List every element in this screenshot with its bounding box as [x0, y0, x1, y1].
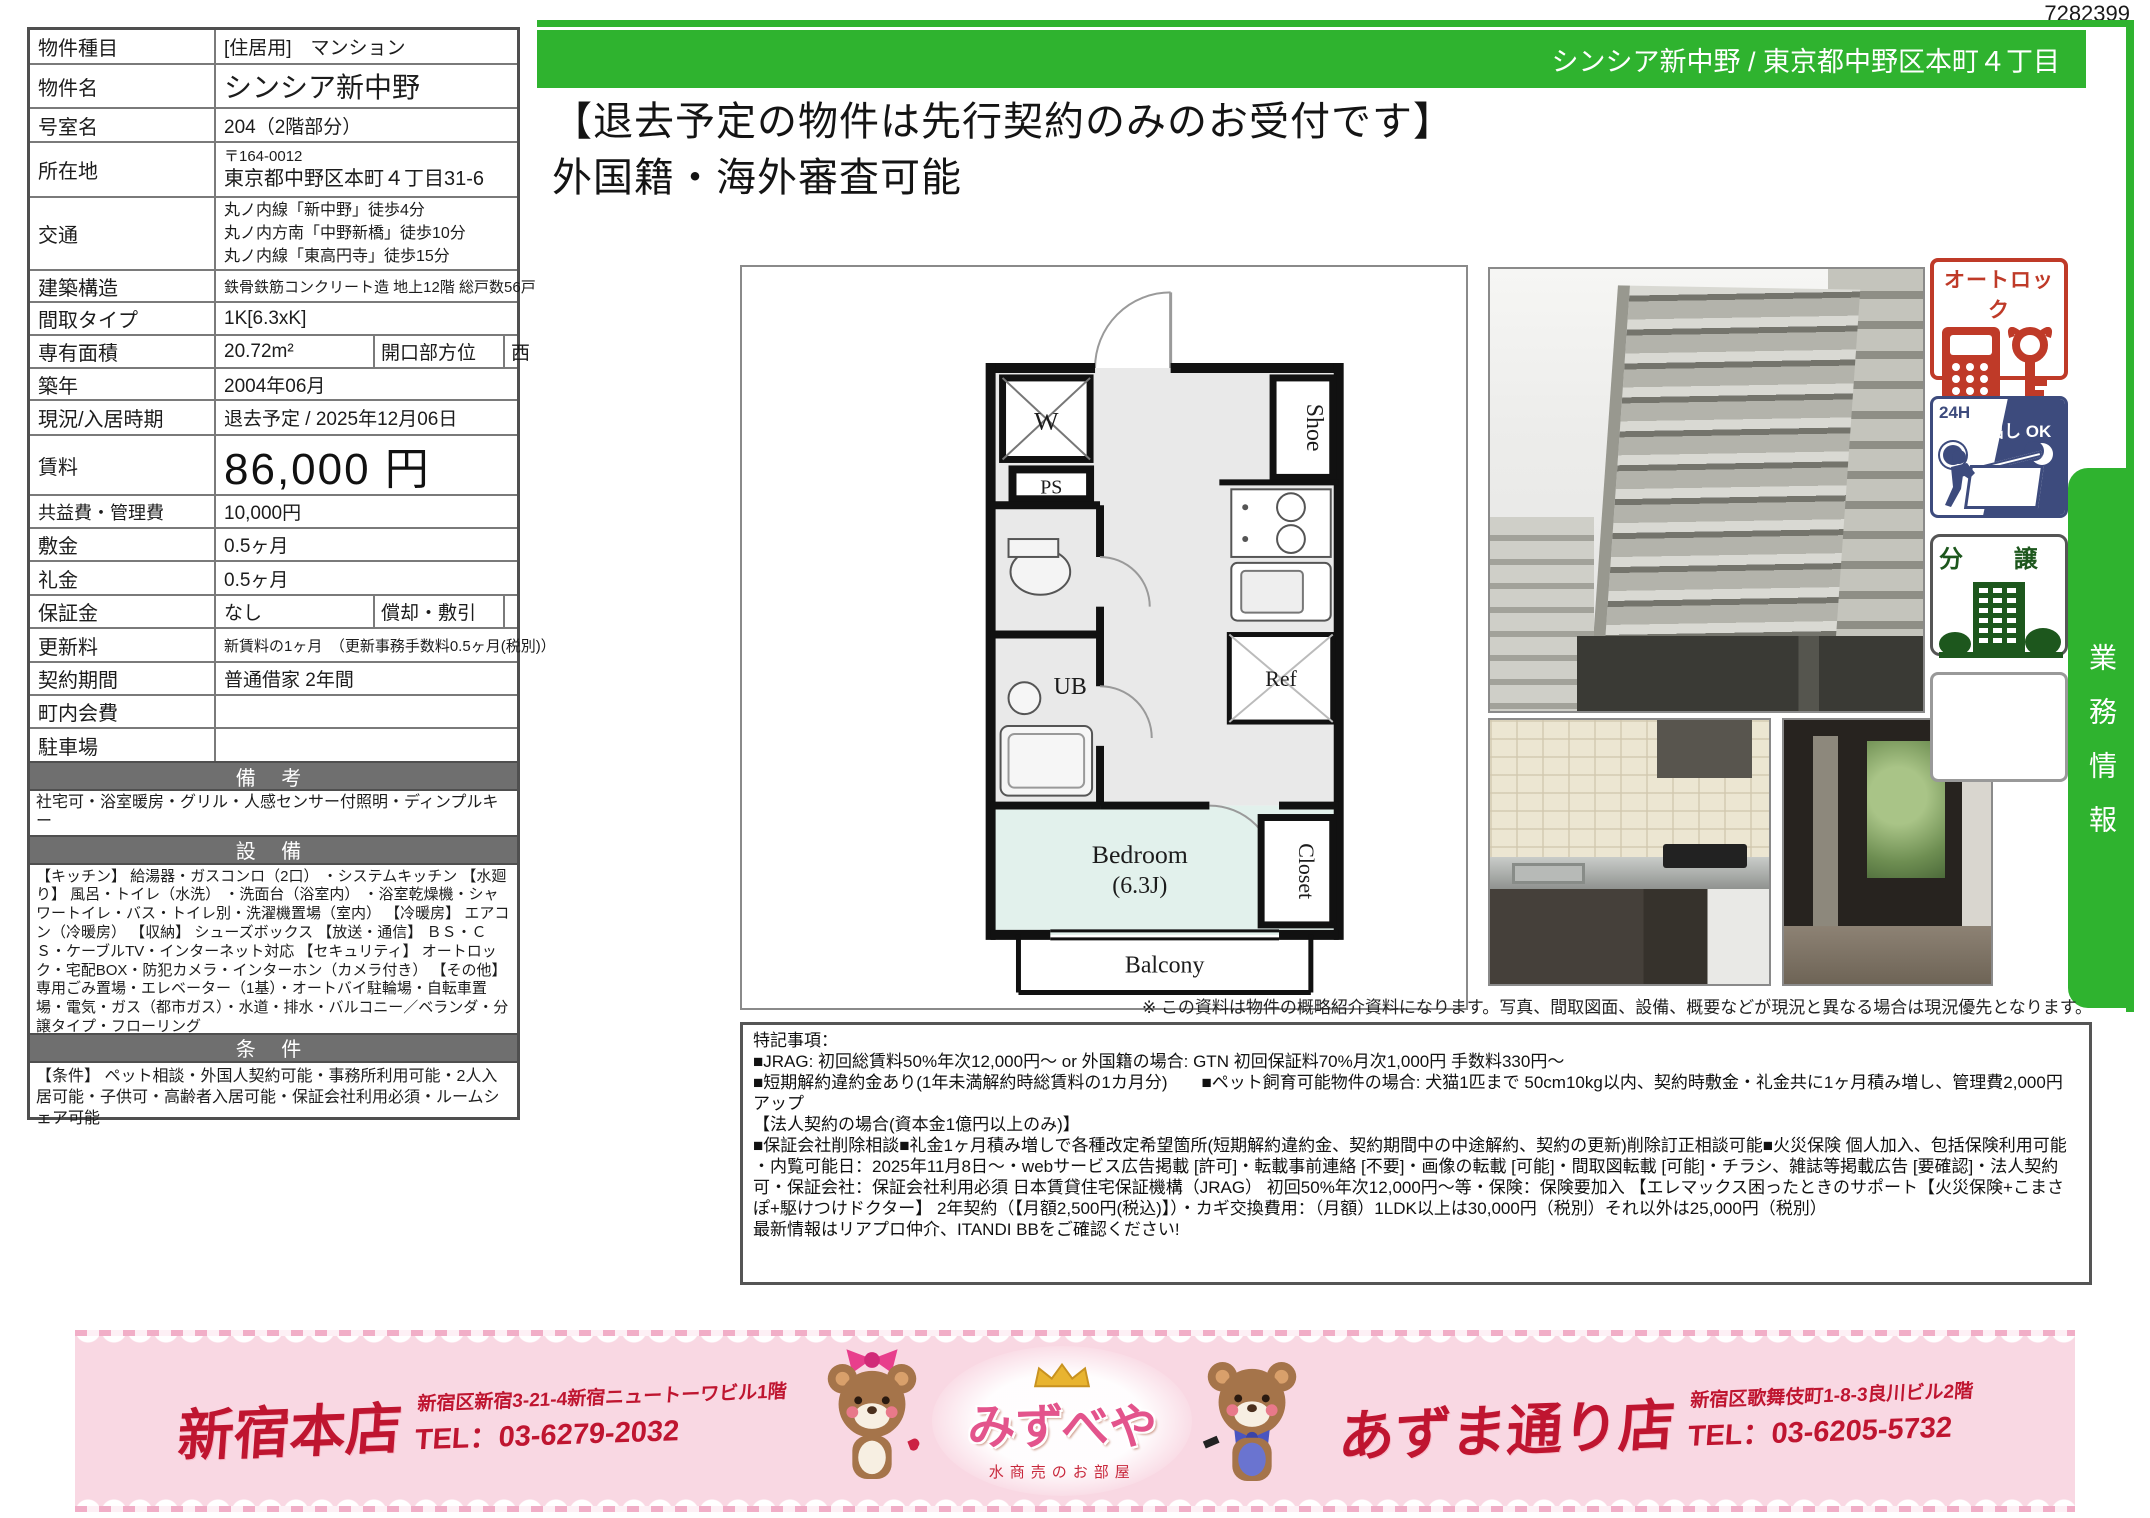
table-row: 現況/入居時期 退去予定 / 2025年12月06日 [30, 399, 517, 434]
row-value: 0.5ヶ月 [216, 529, 517, 560]
badge-autolock-label: オートロック [1938, 264, 2060, 324]
badge-24h-label: 24H ゴミ出し OK [1939, 403, 2051, 441]
row-value: 丸ノ内線「新中野」徒歩4分 丸ノ内方南「中野新橋」徒歩10分 丸ノ内線「東高円寺… [216, 198, 517, 269]
table-row: 契約期間 普通借家 2年間 [30, 661, 517, 694]
row-label: 更新料 [30, 629, 216, 661]
row-value: 0.5ヶ月 [216, 562, 517, 594]
building-exterior-photo [1488, 267, 1925, 713]
row-value: 新賃料の1ヶ月 （更新事務手数料0.5ヶ月(税別)） [216, 629, 517, 661]
label-ub: UB [1054, 674, 1087, 700]
table-row-rent: 賃料 86,000 円 [30, 434, 517, 494]
label-bedroom-size: (6.3J) [1112, 873, 1167, 899]
rent-value: 86,000 円 [216, 436, 517, 494]
row-label: 保証金 [30, 596, 216, 627]
row-value: 20.72m² [216, 336, 373, 367]
note-line: 特記事項： [753, 1030, 2079, 1051]
row-value [216, 696, 517, 727]
row-label: 建築構造 [30, 271, 216, 301]
section-header-joken: 条 件 [30, 1033, 517, 1061]
bear-mascot-girl [813, 1342, 931, 1500]
row-label: 礼金 [30, 562, 216, 594]
row-label: 間取タイプ [30, 303, 216, 334]
intercom-icon [1942, 327, 2000, 401]
table-row: 建築構造 鉄骨鉄筋コンクリート造 地上12階 総戸数56戸 [30, 269, 517, 301]
hallway-doorframe [1813, 736, 1838, 947]
row-label: 敷金 [30, 529, 216, 560]
table-row: 築年 2004年06月 [30, 367, 517, 399]
row-label: 築年 [30, 369, 216, 399]
row-value: 2004年06月 [216, 369, 517, 399]
shop-shinjuku-name: 新宿本店 [175, 1383, 405, 1472]
table-row: 共益費・管理費 10,000円 [30, 494, 517, 527]
row-value: 普通借家 2年間 [216, 663, 517, 694]
section-body-setsubi: 【キッチン】 給湯器・ガスコンロ（2口） ・システムキッチン 【水廻り】 風呂・… [30, 863, 517, 1033]
shop-banner: 新宿本店 新宿区新宿3-21-4新宿ニュートーワビル1階 TEL：03-6279… [75, 1330, 2075, 1512]
table-row: 保証金 なし 償却・敷引 [30, 594, 517, 627]
label-ps: PS [1040, 476, 1062, 498]
label-washer: W [1034, 407, 1059, 436]
row-value: 204（2階部分） [216, 109, 517, 141]
autolock-art [1938, 324, 2060, 405]
row-sublabel: 償却・敷引 [373, 596, 505, 627]
label-ref: Ref [1265, 667, 1297, 691]
section-header-biko: 備 考 [30, 761, 517, 789]
kitchen-stove [1663, 844, 1747, 868]
property-spec-table: 物件種目 [住居用] マンション 物件名 シンシア新中野 号室名 204（2階部… [27, 27, 520, 1120]
floorplan-panel: W PS Shoe Ref UB [740, 265, 1468, 1010]
row-value: 1K[6.3xK] [216, 303, 517, 334]
row-value: 10,000円 [216, 496, 517, 527]
note-line: 最新情報はリアプロ仲介、ITANDI BBをご確認ください! [753, 1219, 2079, 1240]
section-body-joken: 【条件】 ペット相談・外国人契約可能・事務所利用可能・2人入居可能・子供可・高齢… [30, 1061, 517, 1117]
label-balcony: Balcony [1125, 953, 1205, 979]
row-subvalue: 西 [505, 336, 571, 367]
row-label: 現況/入居時期 [30, 401, 216, 434]
table-row: 間取タイプ 1K[6.3xK] [30, 301, 517, 334]
bear-mascot-boy [1193, 1342, 1311, 1500]
person-icon [1941, 449, 1981, 511]
headline: 【退去予定の物件は先行契約のみのお受付です】 外国籍・海外審査可能 [552, 94, 2082, 206]
banner-content: 新宿本店 新宿区新宿3-21-4新宿ニュートーワビル1階 TEL：03-6279… [75, 1330, 2075, 1512]
headline-line1: 【退去予定の物件は先行契約のみのお受付です】 [552, 94, 2082, 150]
row-label: 町内会費 [30, 696, 216, 727]
property-title-text: シンシア新中野 / 東京都中野区本町４丁目 [1551, 40, 2060, 79]
side-tab-label: 業務情報 [2081, 617, 2121, 859]
hallway-floor [1784, 926, 1991, 984]
empty-badge-slot [1930, 672, 2068, 782]
mizubeya-logo: みずべや 水商売のお部屋 [959, 1361, 1165, 1482]
disclaimer-text: ※ この資料は物件の概略紹介資料になります。写真、間取図面、設備、概要などが現況… [740, 993, 2092, 1018]
green-top-rule [537, 20, 2134, 27]
intercom-screen [1950, 335, 1992, 355]
key-icon [2004, 327, 2056, 405]
headline-line2: 外国籍・海外審査可能 [552, 150, 2082, 206]
table-row: 所在地 〒164-0012 東京都中野区本町４丁目31-6 [30, 141, 517, 196]
shop-azuma-meta: 新宿区歌舞伎町1-8-3良川ビル2階 TEL：03-6205-5732 [1687, 1375, 1975, 1454]
badge-24h-line1: 24H [1939, 403, 2051, 422]
shop-shinjuku-meta: 新宿区新宿3-21-4新宿ニュートーワビル1階 TEL：03-6279-2032 [414, 1376, 788, 1458]
badge-24h-line2: ゴミ出し OK [1953, 422, 2051, 441]
row-value: 〒164-0012 東京都中野区本町４丁目31-6 [216, 143, 517, 196]
shop-azuma-name: あずま通り店 [1336, 1380, 1677, 1473]
address: 東京都中野区本町４丁目31-6 [224, 166, 484, 192]
mizubeya-logo-subtitle: 水商売のお部屋 [967, 1461, 1157, 1482]
kitchen-sink [1512, 863, 1585, 884]
section-body-biko: 社宅可・浴室暖房・グリル・人感センサー付照明・ディンプルキー [30, 789, 517, 835]
side-tab-business-info: 業務情報 [2068, 468, 2134, 1008]
table-row: 更新料 新賃料の1ヶ月 （更新事務手数料0.5ヶ月(税別)） [30, 627, 517, 661]
floorplan-drawing: W PS Shoe Ref UB [742, 267, 1466, 1008]
table-row: 交通 丸ノ内線「新中野」徒歩4分 丸ノ内方南「中野新橋」徒歩10分 丸ノ内線「東… [30, 196, 517, 269]
table-row: 敷金 0.5ヶ月 [30, 527, 517, 560]
row-sublabel: 開口部方位 [373, 336, 505, 367]
row-subvalue [505, 596, 571, 627]
postal-code: 〒164-0012 [224, 148, 302, 166]
kitchen-photo [1488, 718, 1771, 986]
row-label: 賃料 [30, 436, 216, 494]
table-row: 礼金 0.5ヶ月 [30, 560, 517, 594]
table-row: 物件種目 [住居用] マンション [30, 30, 517, 63]
badge-autolock: オートロック [1930, 258, 2068, 380]
row-value: 退去予定 / 2025年12月06日 [216, 401, 517, 434]
row-label: 交通 [30, 198, 216, 269]
row-label: 所在地 [30, 143, 216, 196]
row-label: 物件種目 [30, 30, 216, 63]
row-label: 駐車場 [30, 729, 216, 761]
note-line: ■JRAG: 初回総賃料50%年次12,000円～ or 外国籍の場合: GTN… [753, 1051, 2079, 1072]
label-closet: Closet [1294, 843, 1318, 899]
special-notes-box: 特記事項： ■JRAG: 初回総賃料50%年次12,000円～ or 外国籍の場… [740, 1022, 2092, 1285]
row-label: 専有面積 [30, 336, 216, 367]
table-row: 駐車場 [30, 727, 517, 761]
row-label: 契約期間 [30, 663, 216, 694]
label-bedroom: Bedroom [1092, 840, 1188, 869]
section-header-setsubi: 設 備 [30, 835, 517, 863]
table-row: 専有面積 20.72m² 開口部方位 西 [30, 334, 517, 367]
transit-line: 丸ノ内線「新中野」徒歩4分 [224, 199, 425, 222]
row-label: 共益費・管理費 [30, 496, 216, 527]
shop-shinjuku: 新宿本店 新宿区新宿3-21-4新宿ニュートーワビル1階 TEL：03-6279… [177, 1370, 787, 1472]
transit-line: 丸ノ内線「東高円寺」徒歩15分 [224, 245, 450, 268]
note-line: ■保証会社削除相談■礼金1ヶ月積み増しで各種改定希望箇所(短期解約違約金、契約期… [753, 1135, 2079, 1156]
badge-bunjo-label: 分 譲 [1939, 539, 2059, 574]
row-value: [住居用] マンション [216, 30, 517, 63]
mizubeya-logo-text: みずべや [967, 1387, 1157, 1457]
table-row: 町内会費 [30, 694, 517, 727]
row-value: 鉄骨鉄筋コンクリート造 地上12階 総戸数56戸 [216, 271, 517, 301]
row-value: なし [216, 596, 373, 627]
shop-azuma: あずま通り店 新宿区歌舞伎町1-8-3良川ビル2階 TEL：03-6205-57… [1338, 1369, 1973, 1472]
table-row: 号室名 204（2階部分） [30, 107, 517, 141]
note-line: 【法人契約の場合(資本金1億円以上のみ)】 [753, 1114, 2079, 1135]
note-line: ・内覧可能日：2025年11月8日～・webサービス広告掲載 [許可]・転載事前… [753, 1156, 2079, 1219]
label-shoe: Shoe [1301, 404, 1327, 452]
row-value [216, 729, 517, 761]
note-line: ■短期解約違約金あり(1年未満解約時総賃料の1カ月分) ■ペット飼育可能物件の場… [753, 1072, 2079, 1114]
transit-line: 丸ノ内方南「中野新橋」徒歩10分 [224, 222, 466, 245]
kitchen-hood [1657, 720, 1752, 778]
building-entrance [1577, 636, 1923, 711]
badge-24h-garbage: 24H ゴミ出し OK [1930, 396, 2068, 518]
row-value: シンシア新中野 [216, 65, 517, 107]
badge-bunjo: 分 譲 [1930, 534, 2068, 656]
row-label: 物件名 [30, 65, 216, 107]
row-label: 号室名 [30, 109, 216, 141]
condo-building-icon [1939, 574, 2063, 660]
property-title-bar: シンシア新中野 / 東京都中野区本町４丁目 [537, 30, 2086, 88]
kitchen-cabinets [1490, 889, 1769, 984]
table-row: 物件名 シンシア新中野 [30, 63, 517, 107]
